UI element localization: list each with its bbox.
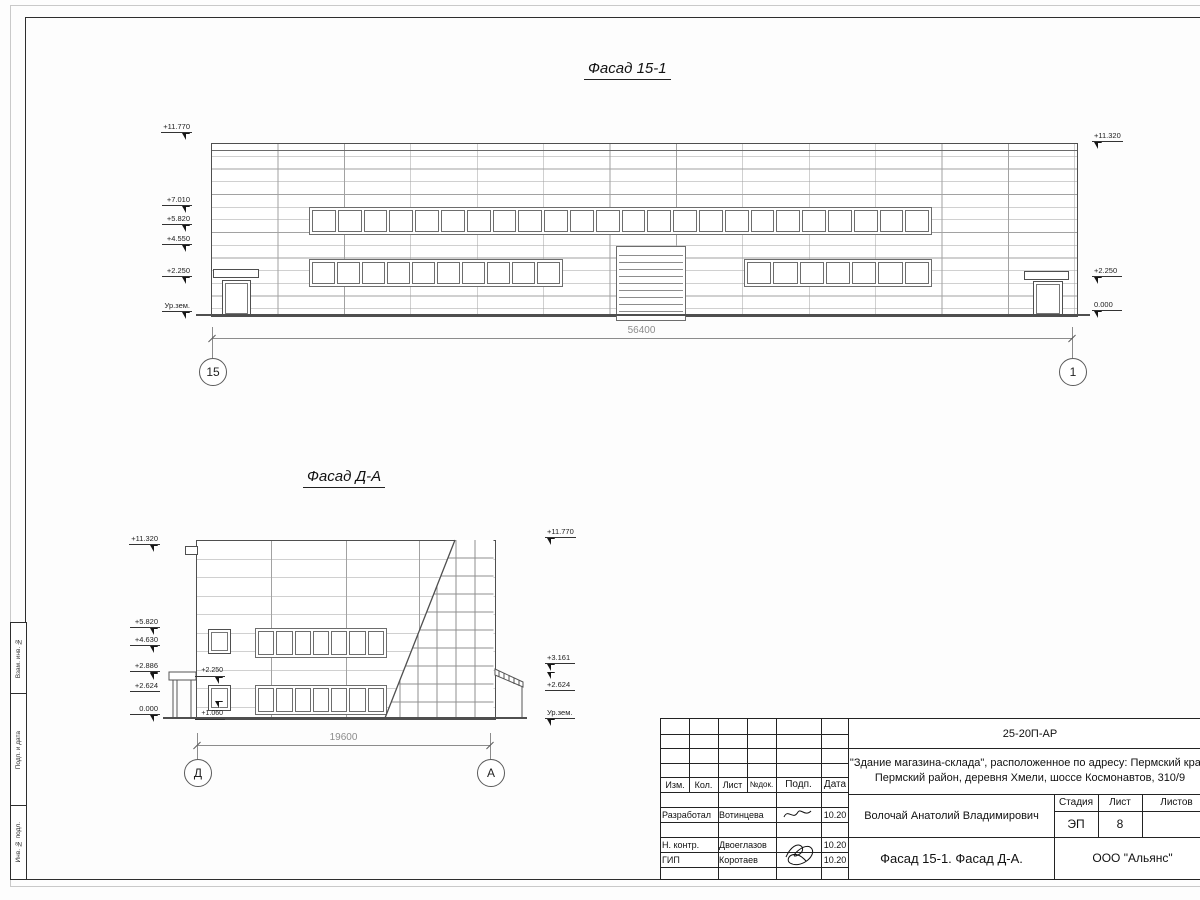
tb-doc-number: 25-20П-АР bbox=[849, 719, 1200, 748]
elevation-mark: +1.060 bbox=[195, 709, 225, 720]
elevation-mark: +2.250 bbox=[148, 266, 192, 277]
elevation-mark: +11.320 bbox=[1092, 131, 1136, 142]
axis-bubble-15: 15 bbox=[199, 358, 227, 386]
axis-bubble-1: 1 bbox=[1059, 358, 1087, 386]
tb-col-kol: Кол. bbox=[689, 777, 718, 792]
sectional-gate bbox=[616, 246, 686, 321]
elevation-mark: +4.550 bbox=[148, 234, 192, 245]
elevation-mark: +3.161 bbox=[545, 653, 589, 664]
elevation-mark: +5.820 bbox=[148, 214, 192, 225]
window-band-lower-left bbox=[309, 259, 563, 287]
elevation-mark: +11.770 bbox=[545, 527, 589, 538]
tb-name: Вотинцева bbox=[719, 807, 776, 822]
frame-stamp-cell: Инв. № подл. bbox=[10, 805, 27, 880]
elevation-mark: +2.624 bbox=[116, 681, 160, 692]
entrance-canopy-right bbox=[1024, 271, 1069, 280]
title-block-left: Изм. Кол. Лист №док. Подп. Дата Разработ… bbox=[660, 718, 850, 880]
tb-stage-value: ЭП bbox=[1054, 811, 1098, 837]
elevation-mark: +4.630 bbox=[116, 635, 160, 646]
left-porch bbox=[169, 672, 196, 718]
tb-supervisor: Волочай Анатолий Владимирович bbox=[849, 794, 1054, 837]
elevation-mark: +2.250 bbox=[1092, 266, 1136, 277]
facade-151-elevation bbox=[211, 143, 1078, 317]
axis-bubble-a: А bbox=[477, 759, 505, 787]
tb-object-name: "Здание магазина-склада", расположенное … bbox=[849, 748, 1200, 794]
tb-name: Коротаев bbox=[719, 852, 776, 867]
elevation-mark: Ур.зем. bbox=[545, 708, 589, 719]
elevation-mark: +2.886 bbox=[116, 661, 160, 672]
tb-role: Н. контр. bbox=[662, 837, 718, 852]
frame-stamp-cell: Взам. инв. № bbox=[10, 622, 27, 695]
tb-col-list: Лист bbox=[718, 777, 747, 792]
tb-sheet-label: Лист bbox=[1098, 794, 1142, 811]
drawing-sheet: Взам. инв. № Подп. и дата Инв. № подл. Ф… bbox=[0, 0, 1200, 900]
elevation-mark: +11.320 bbox=[116, 534, 160, 545]
tb-col-podp: Подп. bbox=[776, 777, 821, 792]
tb-sheet-value: 8 bbox=[1098, 811, 1142, 837]
tb-date: 10.20 bbox=[821, 852, 849, 867]
tb-col-ndok: №док. bbox=[747, 777, 776, 792]
tb-company: ООО "Альянс" bbox=[1054, 837, 1200, 879]
tb-role: Разработал bbox=[662, 807, 718, 822]
ground-line bbox=[196, 314, 1090, 316]
window-band-upper bbox=[309, 207, 932, 235]
dimension-value: 56400 bbox=[211, 325, 1072, 336]
parapet-line bbox=[212, 150, 1077, 151]
entrance-door-left bbox=[222, 280, 251, 317]
title-block-right: 25-20П-АР "Здание магазина-склада", расп… bbox=[848, 718, 1200, 880]
entrance-canopy-left bbox=[213, 269, 259, 278]
dimension-value: 19600 bbox=[197, 732, 490, 743]
paper-edge-top bbox=[10, 5, 1200, 6]
paper-edge-bottom bbox=[10, 886, 1200, 887]
elevation-mark: 0.000 bbox=[116, 704, 160, 715]
elevation-mark: +2.250 bbox=[195, 666, 225, 677]
elevation-mark: +7.010 bbox=[148, 195, 192, 206]
tb-sheets-label: Листов bbox=[1142, 794, 1200, 811]
extension-line bbox=[490, 733, 491, 760]
frame-stamp-cell: Подп. и дата bbox=[10, 693, 27, 807]
elevation-mark: +11.770 bbox=[148, 122, 192, 133]
frame-stamp-label: Взам. инв. № bbox=[15, 638, 22, 678]
tb-date: 10.20 bbox=[821, 807, 849, 822]
tb-col-data: Дата bbox=[821, 777, 849, 792]
elevation-mark: 0.000 bbox=[1092, 300, 1136, 311]
tb-name: Двоеглазов bbox=[719, 837, 776, 852]
facade-151-title: Фасад 15-1 bbox=[584, 60, 671, 80]
frame-stamp-label: Подп. и дата bbox=[15, 731, 22, 769]
tb-date: 10.20 bbox=[821, 837, 849, 852]
elevation-mark: +5.820 bbox=[116, 617, 160, 628]
tb-role: ГИП bbox=[662, 852, 718, 867]
dimension-line bbox=[197, 745, 490, 746]
frame-stamp-label: Инв. № подл. bbox=[15, 822, 22, 863]
extension-line bbox=[1072, 327, 1073, 358]
signature bbox=[776, 805, 821, 875]
tb-drawing-title: Фасад 15-1. Фасад Д-А. bbox=[849, 837, 1054, 879]
tb-stage-label: Стадия bbox=[1054, 794, 1098, 811]
window-band-lower-right bbox=[744, 259, 932, 287]
facade-da-details bbox=[160, 535, 540, 725]
elevation-mark: +2.624 bbox=[545, 680, 589, 691]
facade-da-title: Фасад Д-А bbox=[303, 468, 385, 488]
axis-bubble-d: Д bbox=[184, 759, 212, 787]
dimension-line bbox=[212, 338, 1073, 339]
tb-col-izm: Изм. bbox=[661, 777, 689, 792]
elevation-mark: Ур.зем. bbox=[148, 301, 192, 312]
entrance-door-right bbox=[1033, 281, 1063, 317]
side-awning bbox=[495, 669, 523, 718]
